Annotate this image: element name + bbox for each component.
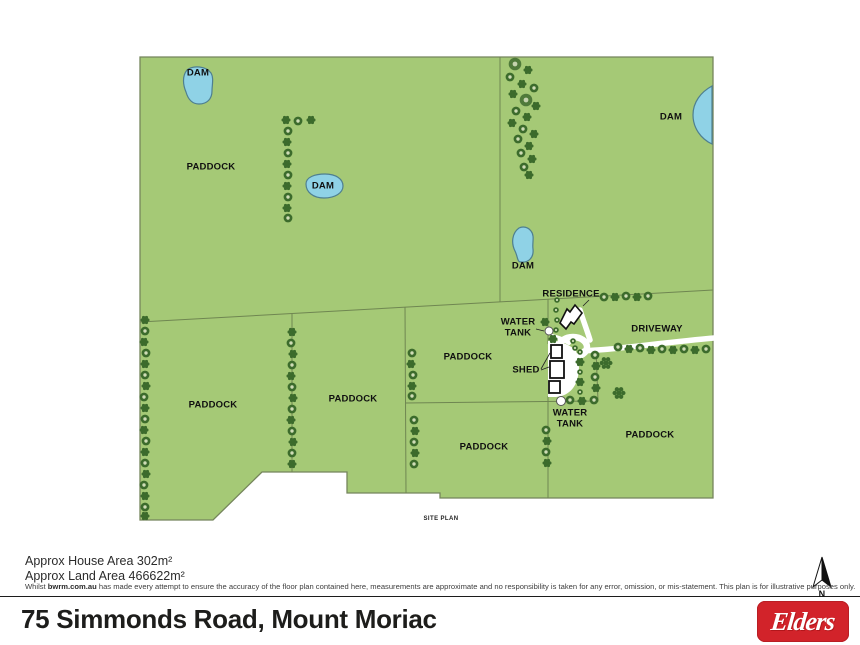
paddock-label-se: PADDOCK (626, 430, 675, 441)
disclaimer-brand: bwrm.com.au (48, 582, 97, 591)
residence-label: RESIDENCE (542, 289, 599, 300)
dam-label-ne: DAM (660, 112, 682, 123)
elders-logo: Elders (757, 601, 849, 642)
site-plan-page: DAM PADDOCK DAM DAM DAM RESIDENCE WATER … (0, 0, 860, 645)
water-tank-north-shape (545, 327, 553, 335)
site-plan-graphic (0, 0, 860, 645)
water-tank-south-shape (557, 397, 566, 406)
elders-logo-text: Elders (770, 607, 836, 637)
paddock-label-sw: PADDOCK (329, 394, 378, 405)
water-tank-north-label: WATER TANK (495, 318, 541, 339)
dam-label-w: DAM (312, 181, 334, 192)
shed-label: SHED (512, 365, 539, 376)
disclaimer-text: Whilst bwrm.com.au has made every attemp… (25, 582, 855, 591)
site-plan-caption: SITE PLAN (424, 516, 459, 522)
separator-line (0, 596, 860, 597)
disclaimer-prefix: Whilst (25, 582, 48, 591)
paddock-label-w: PADDOCK (189, 400, 238, 411)
paddock-label-nw: PADDOCK (187, 162, 236, 173)
dam-label-c: DAM (512, 261, 534, 272)
dam-label-nw: DAM (187, 68, 209, 79)
paddock-label-s: PADDOCK (460, 442, 509, 453)
disclaimer-rest: has made every attempt to ensure the acc… (97, 582, 856, 591)
land-area-text: Approx Land Area 466622m² (25, 569, 185, 583)
page-title: 75 Simmonds Road, Mount Moriac (21, 604, 437, 635)
paddock-label-c: PADDOCK (444, 352, 493, 363)
house-area-text: Approx House Area 302m² (25, 554, 172, 568)
north-label: N (819, 589, 826, 599)
water-tank-south-label: WATER TANK (547, 409, 593, 430)
land-parcel (140, 57, 713, 520)
driveway-label: DRIVEWAY (631, 324, 682, 335)
